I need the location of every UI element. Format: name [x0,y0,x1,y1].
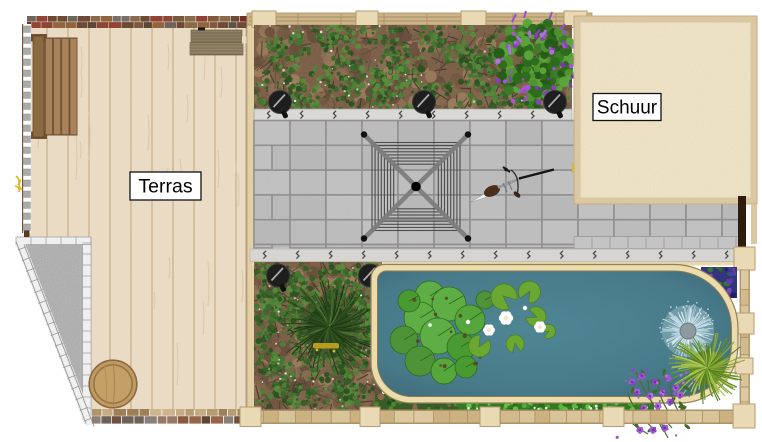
svg-text:Terras: Terras [138,176,192,198]
svg-text:Schuur: Schuur [597,98,658,119]
